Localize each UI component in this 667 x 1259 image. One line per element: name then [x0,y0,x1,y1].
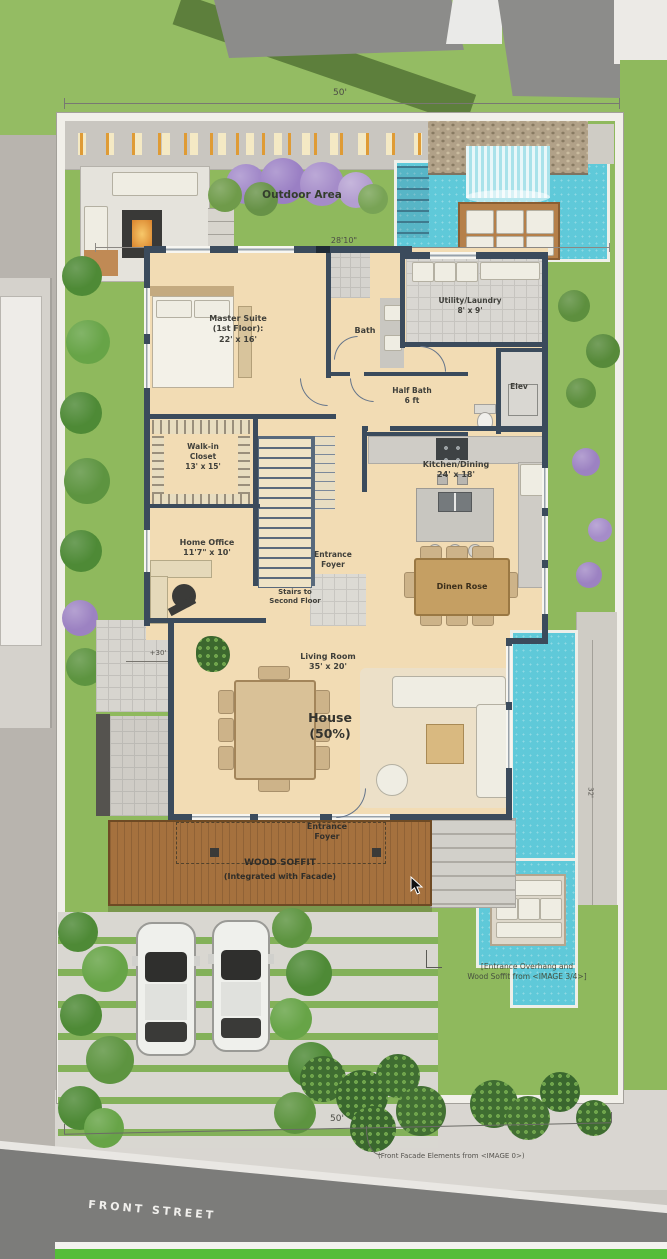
bush-purple [576,562,602,588]
half-bath-label: Half Bath 6 ft [372,386,452,406]
wall [404,252,548,259]
bush-purple [572,448,600,476]
stair-upper-flight [315,436,335,510]
car [136,922,196,1056]
drive-plant [272,908,312,948]
house-share: (50%) [288,726,372,742]
bush-green [358,184,388,214]
room-name: Master Suite [168,314,308,324]
car-roof [145,984,187,1020]
pool-steps-terrace [430,818,516,908]
car-windshield [145,952,187,982]
master-suite-label: Master Suite (1st Floor): 22' x 16' [168,314,308,345]
neighbor-building-panel [0,296,42,646]
window [506,710,512,768]
wall [364,432,468,436]
office-label: Home Office 11'7" x 10' [152,538,262,559]
soffit-label: WOOD SOFFIT [196,858,364,870]
room-name: Foyer [298,560,368,570]
room-name: Utility/Laundry [404,296,536,306]
room-size: 8' x 9' [404,306,536,316]
drive-plant [82,946,128,992]
room-name: Kitchen/Dining [398,460,514,470]
wall [362,426,367,492]
living-chair [314,746,330,770]
window [430,252,476,259]
leader-line [426,967,442,968]
wall [144,618,266,623]
window [506,646,512,702]
mouse-cursor-icon [410,876,424,896]
window [144,530,150,572]
coffee-table [426,724,464,764]
dining-table-label: Dinen Rose [437,582,488,592]
neighbor-roof-gap [446,0,502,44]
shrub [60,530,102,572]
sofa [476,704,510,798]
dim-tick [619,98,620,109]
room-name: Half Bath [372,386,452,396]
car-mirror [208,954,214,964]
window [238,246,294,253]
porch-label-line: Entrance [293,822,361,832]
house-share-label: House (50%) [288,710,372,743]
annotation-line: Wood Soffit from <IMAGE 3/4>] [442,972,612,982]
kitchen-label: Kitchen/Dining 24' x 18' [398,460,514,481]
armchair [376,764,408,796]
window [166,246,210,253]
door-jamb [316,246,330,253]
utility-label: Utility/Laundry 8' x 9' [404,296,536,316]
drive-plant [270,998,312,1040]
room-size: 11'7" x 10' [152,548,262,558]
bush-purple [62,600,98,636]
office-desk [150,576,168,624]
car-mirror [132,956,138,966]
entrance-foyer-label: Entrance Foyer [298,550,368,570]
dim-bottom-label: 50' [317,1114,357,1126]
wall [390,426,548,431]
stairs-label: Stairs to Second Floor [252,588,338,606]
shrub [586,334,620,368]
car-roof [221,982,261,1016]
dim-tick [64,98,65,109]
window [542,468,548,508]
living-chair [218,746,234,770]
dim-top-label: 50' [320,88,360,100]
wall [496,348,548,352]
living-chair [218,718,234,742]
car-mirror [194,956,200,966]
shrub [396,1086,446,1136]
wall [364,372,468,376]
washer-dryer [456,262,478,282]
bed-headboard [150,286,234,296]
porch-post [210,848,219,857]
room-name: Living Room [280,652,376,662]
wall [144,504,260,508]
drive-plant [58,912,98,952]
leader-line [426,950,427,968]
pool-lounger [496,210,524,234]
laundry-counter [480,262,540,280]
drive-plant [84,1108,124,1148]
room-name: Walk-in [161,442,245,452]
shrub [66,320,110,364]
island-sink [438,492,472,512]
window [144,288,150,334]
dim-tick [64,1124,65,1134]
shrub [540,1072,580,1112]
dim-tick [609,243,610,252]
lounge-cushion [540,898,562,920]
car-rear-window [221,1018,261,1038]
neighbor-roof [214,0,464,58]
car-rear-window [145,1022,187,1042]
room-size: 22' x 16' [168,335,308,345]
closet-shelves [152,420,250,434]
indoor-plant [196,636,230,672]
car [212,920,270,1052]
room-name: Closet [161,452,245,462]
living-chair [258,778,290,792]
shrub [576,1100,612,1136]
shrub [60,392,102,434]
wall [326,372,350,376]
wall [144,414,336,419]
dining-table: Dinen Rose [414,558,510,616]
car-mirror [268,954,274,964]
room-name: Home Office [152,538,262,548]
neighbor-roof-white [614,0,667,64]
pool-lounger [526,210,554,234]
drive-plant [60,994,102,1036]
dim-tick [611,1112,612,1122]
wall [168,620,174,820]
range [436,438,468,460]
house-name: House [288,710,372,726]
bath-label: Bath [345,326,385,336]
soffit-sublabel: (Integrated with Facade) [184,872,376,882]
shrub [64,458,110,504]
living-chair [218,690,234,714]
dim-inner-label: 28'10" [320,236,368,246]
pool-steps [397,166,429,238]
shrub [62,256,102,296]
bush-green [208,178,242,212]
bottom-green-bar [55,1249,667,1259]
room-size: 24' x 18' [398,470,514,480]
lounge-cushion [518,898,540,920]
dim-tick [95,243,96,252]
stair-note: Stairs to [252,588,338,597]
bottom-white-strip [55,1242,667,1249]
washer-dryer [434,262,456,282]
shower [330,252,370,298]
drive-plant [86,1036,134,1084]
elevator-label: Elev [497,382,541,392]
room-floor: (1st Floor): [168,324,308,334]
lounge-cushion [496,922,562,938]
drive-plant [286,950,332,996]
closet-label: Walk-in Closet 13' x 15' [161,442,245,471]
facade-annotation: (Front Facade Elements from <IMAGE 0>) [378,1152,618,1161]
porch-foyer-label: Entrance Foyer [293,822,361,843]
bush-purple [588,518,612,542]
car-windshield [221,950,261,980]
deck-corner [588,124,614,164]
living-room-label: Living Room 35' x 20' [280,652,376,673]
window [542,516,548,560]
wall [326,250,331,378]
room-size: 13' x 15' [161,462,245,472]
room-size: 6 ft [372,396,452,406]
outdoor-sofa [112,172,198,196]
shrub [558,290,590,322]
light-fixtures-row [78,133,428,155]
stair-note: Second Floor [252,597,338,606]
fireplace-flame [132,220,152,248]
pool-dim-label: 32' [585,785,594,801]
dim-line-top [64,103,620,104]
planter-strip [96,714,110,816]
room-name: Entrance [298,550,368,560]
room-size: 35' x 20' [280,662,376,672]
wall [253,414,258,586]
window [542,568,548,614]
shrub [566,378,596,408]
patio [110,716,174,816]
annotation-line: [Entrance Overhang and [442,962,612,972]
outdoor-area-label: Outdoor Area [242,189,362,203]
porch-label-line: Foyer [293,832,361,842]
right-lawn [620,60,667,1160]
porch-post [372,848,381,857]
washer-dryer [412,262,434,282]
pool-lounger [466,210,494,234]
neighbor-roof [498,0,620,98]
site-plan: 50' Outdoor Area 28'10" [0,0,667,1259]
window [144,344,150,388]
wall [506,638,548,644]
overhang-annotation: [Entrance Overhang and Wood Soffit from … [442,962,612,982]
